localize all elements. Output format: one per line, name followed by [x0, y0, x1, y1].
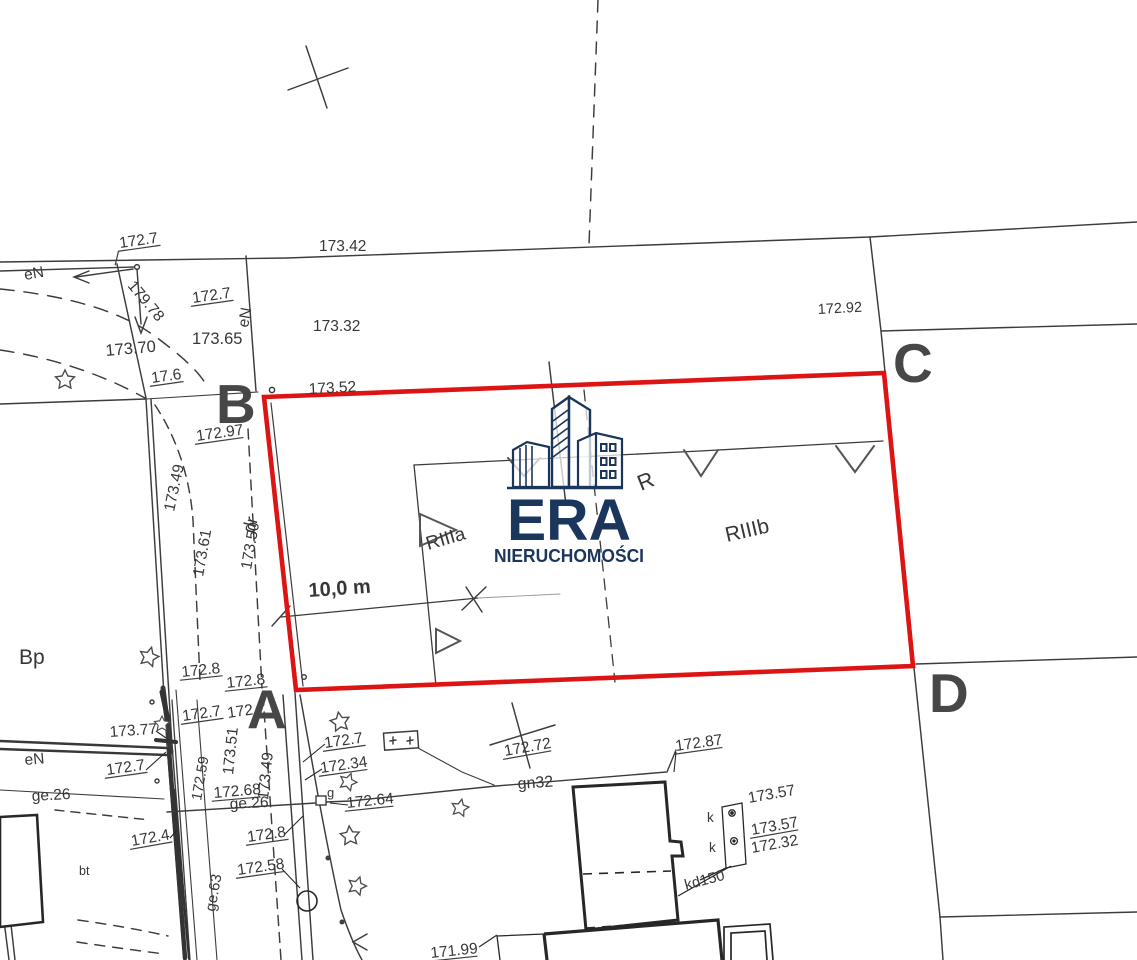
svg-text:172: 172 — [226, 702, 254, 722]
svg-text:bt: bt — [79, 864, 90, 878]
svg-text:172.92: 172.92 — [817, 300, 862, 318]
svg-text:173.42: 173.42 — [319, 238, 366, 255]
svg-text:173.65: 173.65 — [192, 330, 242, 348]
svg-text:ERA: ERA — [507, 488, 631, 553]
svg-text:gn32: gn32 — [517, 774, 554, 793]
svg-text:ge.26: ge.26 — [31, 786, 71, 805]
svg-text:eN: eN — [24, 750, 45, 769]
svg-text:g: g — [327, 785, 334, 800]
svg-text:Bp: Bp — [19, 646, 45, 669]
svg-text:D: D — [929, 662, 969, 724]
svg-text:ge.26: ge.26 — [229, 794, 269, 813]
svg-text:k: k — [707, 810, 714, 825]
svg-text:10,0 m: 10,0 m — [308, 576, 372, 602]
svg-text:eN: eN — [23, 264, 45, 284]
svg-text:eN: eN — [235, 306, 255, 328]
svg-text:NIERUCHOMOŚCI: NIERUCHOMOŚCI — [494, 545, 644, 566]
svg-text:k: k — [709, 840, 716, 855]
svg-text:173.32: 173.32 — [313, 318, 360, 335]
svg-text:173.52: 173.52 — [308, 379, 356, 398]
svg-text:C: C — [893, 332, 933, 394]
svg-text:173.77: 173.77 — [109, 721, 157, 741]
